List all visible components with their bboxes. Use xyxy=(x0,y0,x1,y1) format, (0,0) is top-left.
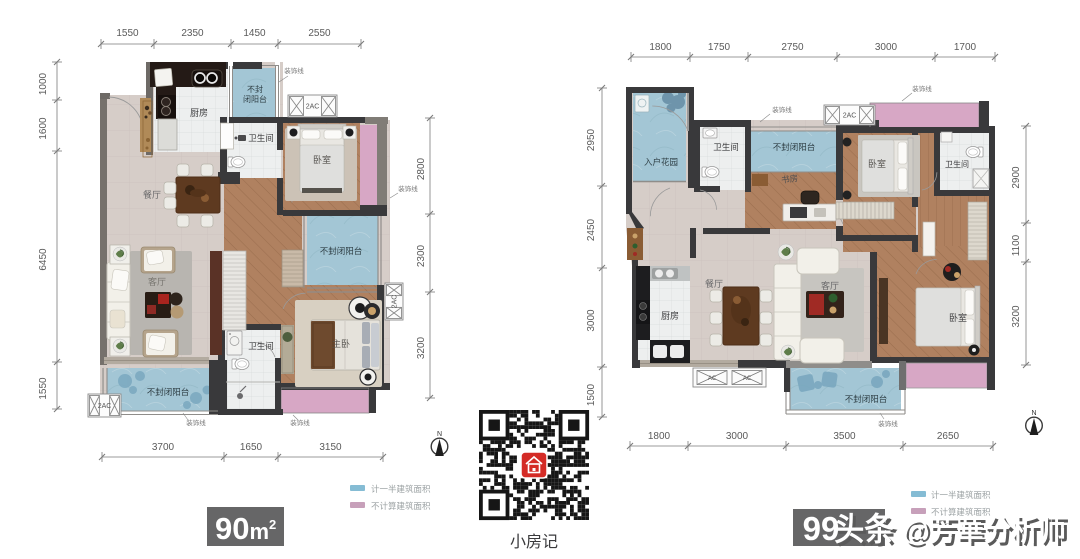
svg-text:1600: 1600 xyxy=(38,117,49,140)
svg-text:不封闭阳台: 不封闭阳台 xyxy=(147,387,190,397)
svg-text:装饰线: 装饰线 xyxy=(878,419,898,428)
svg-text:不封: 不封 xyxy=(247,84,263,94)
svg-text:6450: 6450 xyxy=(38,248,49,271)
svg-text:2650: 2650 xyxy=(937,431,960,442)
svg-text:1000: 1000 xyxy=(38,72,49,95)
svg-text:N: N xyxy=(437,431,442,438)
svg-text:客厅: 客厅 xyxy=(821,280,839,291)
svg-text:3200: 3200 xyxy=(416,336,427,359)
svg-text:N: N xyxy=(1031,410,1036,417)
svg-text:卫生间: 卫生间 xyxy=(248,133,274,143)
svg-text:1100: 1100 xyxy=(1011,234,1022,256)
svg-text:入户花园: 入户花园 xyxy=(644,157,678,167)
svg-text:不封闭阳台: 不封闭阳台 xyxy=(845,394,888,404)
svg-text:头条 @芳華分析师: 头条 @芳華分析师 xyxy=(834,511,1066,547)
svg-text:2750: 2750 xyxy=(781,42,804,53)
svg-text:2AC: 2AC xyxy=(306,104,320,111)
svg-text:餐厅: 餐厅 xyxy=(143,189,161,200)
svg-text:厨房: 厨房 xyxy=(190,107,208,118)
svg-text:1450: 1450 xyxy=(243,28,266,39)
svg-text:1750: 1750 xyxy=(708,42,731,53)
svg-text:2950: 2950 xyxy=(586,128,597,151)
svg-text:2300: 2300 xyxy=(416,244,427,267)
svg-text:2450: 2450 xyxy=(586,218,597,241)
svg-text:3200: 3200 xyxy=(1011,305,1022,328)
svg-text:小房记: 小房记 xyxy=(510,533,558,551)
svg-text:装饰线: 装饰线 xyxy=(284,66,304,75)
svg-text:计一半建筑面积: 计一半建筑面积 xyxy=(931,490,991,500)
svg-text:2550: 2550 xyxy=(308,28,331,39)
svg-text:1800: 1800 xyxy=(649,42,672,53)
svg-text:客厅: 客厅 xyxy=(148,276,166,287)
svg-text:2350: 2350 xyxy=(181,28,204,39)
svg-text:厨房: 厨房 xyxy=(661,310,679,321)
svg-text:卫生间: 卫生间 xyxy=(713,142,739,152)
svg-text:卧室: 卧室 xyxy=(313,154,331,165)
svg-text:3150: 3150 xyxy=(319,442,342,453)
svg-text:1550: 1550 xyxy=(116,28,139,39)
svg-text:2AC: 2AC xyxy=(392,295,399,309)
svg-text:不封闭阳台: 不封闭阳台 xyxy=(773,142,816,152)
svg-text:1550: 1550 xyxy=(38,377,49,400)
svg-text:装饰线: 装饰线 xyxy=(912,84,932,93)
svg-text:2800: 2800 xyxy=(416,157,427,180)
svg-text:3000: 3000 xyxy=(875,42,898,53)
svg-text:卧室: 卧室 xyxy=(868,158,886,169)
svg-text:装饰线: 装饰线 xyxy=(290,418,310,427)
svg-text:1700: 1700 xyxy=(954,42,977,53)
svg-text:不计算建筑面积: 不计算建筑面积 xyxy=(371,501,431,511)
svg-text:2AC: 2AC xyxy=(98,403,112,410)
svg-text:计一半建筑面积: 计一半建筑面积 xyxy=(371,484,431,494)
svg-text:1650: 1650 xyxy=(240,442,263,453)
svg-text:装饰线: 装饰线 xyxy=(398,184,418,193)
svg-text:卧室: 卧室 xyxy=(949,312,967,323)
svg-text:餐厅: 餐厅 xyxy=(705,278,723,289)
svg-text:装饰线: 装饰线 xyxy=(186,418,206,427)
svg-text:装饰线: 装饰线 xyxy=(772,105,792,114)
svg-text:3000: 3000 xyxy=(726,431,749,442)
svg-text:2900: 2900 xyxy=(1011,166,1022,189)
svg-text:不封闭阳台: 不封闭阳台 xyxy=(320,246,363,256)
svg-text:3700: 3700 xyxy=(152,442,175,453)
svg-text:3000: 3000 xyxy=(586,309,597,332)
svg-text:3500: 3500 xyxy=(833,431,856,442)
svg-text:2AC: 2AC xyxy=(843,113,857,120)
svg-text:1500: 1500 xyxy=(586,383,597,406)
svg-text:AC: AC xyxy=(708,376,717,382)
svg-text:AC: AC xyxy=(743,376,752,382)
svg-text:1800: 1800 xyxy=(648,431,671,442)
svg-text:卫生间: 卫生间 xyxy=(945,159,969,169)
svg-text:闭阳台: 闭阳台 xyxy=(243,94,267,104)
svg-text:主卧: 主卧 xyxy=(332,338,350,349)
svg-text:卫生间: 卫生间 xyxy=(248,341,274,351)
